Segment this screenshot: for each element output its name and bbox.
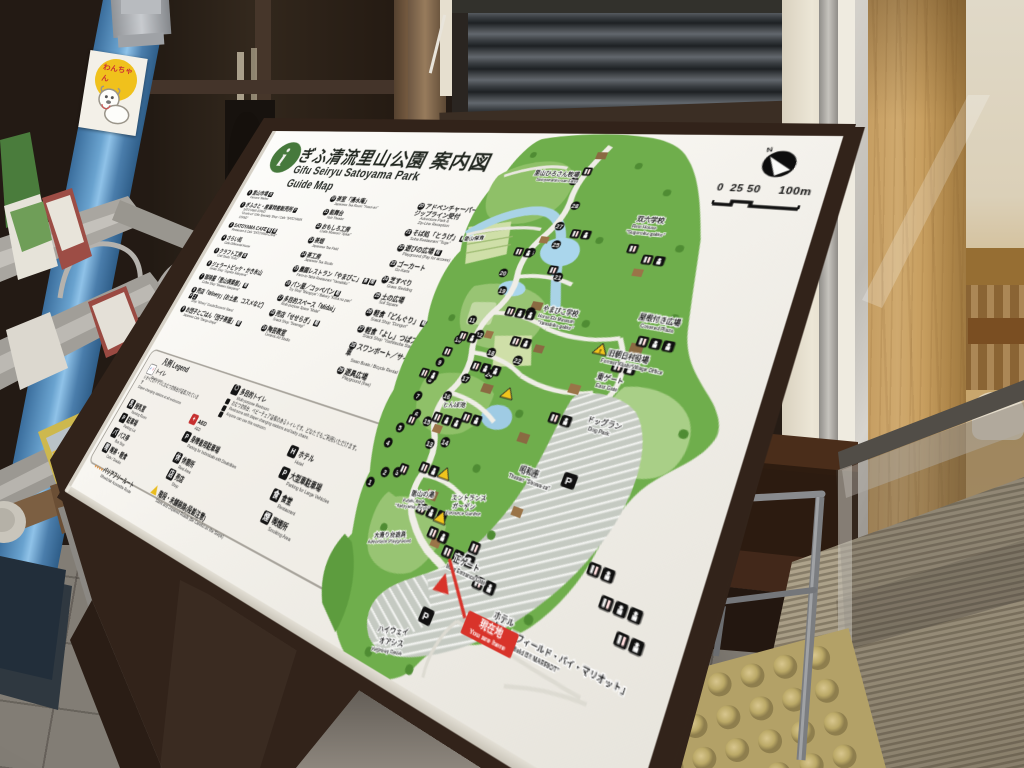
svg-text:ガーデン: ガーデン [451, 499, 476, 511]
svg-text:とんぼ池: とんぼ池 [442, 399, 468, 409]
